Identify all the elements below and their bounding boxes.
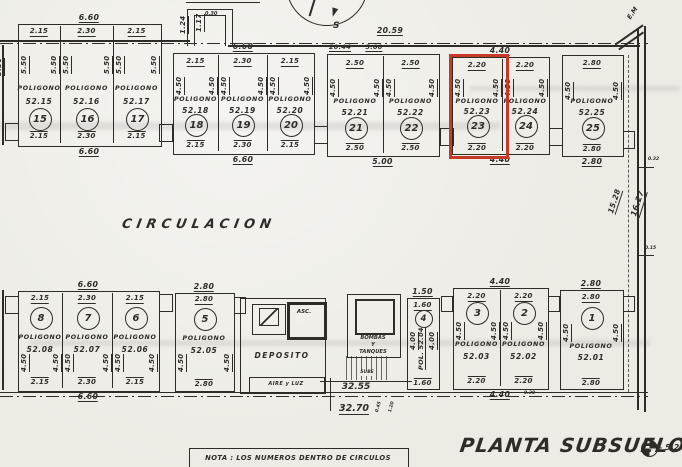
width-dimension: 2.15 — [186, 140, 204, 149]
space-divider — [500, 290, 501, 386]
block-total-dimension: 2.80 — [581, 280, 601, 289]
width-dimension: 2.30 — [78, 295, 96, 304]
pillar — [549, 128, 563, 146]
space-number-badge: 5 — [194, 308, 217, 331]
dimension-label: 1.24 — [180, 16, 189, 34]
space-number: 22 — [405, 123, 419, 134]
pillar — [623, 131, 635, 149]
pumps-label-line: Y — [371, 343, 375, 348]
polygon-code: 52.17 — [123, 98, 150, 106]
depth-dimension: 4.50 — [65, 354, 74, 372]
space-number-badge: 22 — [400, 117, 423, 140]
width-dimension: 2.15 — [127, 28, 145, 37]
polygon-code: 52.18 — [182, 107, 209, 115]
polygon-word: POLIGONO — [502, 342, 545, 348]
width-dimension: 2.20 — [514, 293, 532, 302]
depth-dimension: 4.50 — [21, 354, 30, 372]
dimension-label: 0.30 — [205, 12, 217, 17]
space-number-badge: 15 — [29, 108, 52, 131]
width-dimension: 2.80 — [582, 294, 600, 303]
width-dimension: 2.80 — [195, 296, 213, 305]
depth-dimension: 4.50 — [149, 354, 158, 372]
block-E — [562, 55, 624, 157]
space-number-badge: 16 — [76, 108, 99, 131]
polygon-word: POLIGONO — [569, 344, 612, 350]
pillar — [5, 123, 19, 141]
depth-dimension: 4.00 — [429, 332, 438, 350]
pillar — [159, 294, 173, 312]
depth-dimension: 4.50 — [538, 322, 547, 340]
space-divider — [383, 56, 384, 153]
space-divider — [62, 293, 63, 388]
block-total-dimension: 6.60 — [233, 43, 253, 52]
width-dimension: 2.15 — [126, 377, 144, 386]
floor-plan-drawing: VENTILACION CENTRAL 0.30 1.24 1.17 S 20.… — [0, 0, 682, 467]
space-number-badge: 24 — [515, 115, 538, 138]
setback-dashed-line — [628, 55, 629, 392]
space-number: 7 — [85, 313, 92, 324]
space-number-badge: 17 — [126, 108, 149, 131]
width-dimension: 1.60 — [413, 378, 431, 387]
width-dimension: 2.20 — [467, 293, 485, 302]
dimension-label: 0.15 — [645, 247, 656, 252]
level-label: - 5.2 — [659, 444, 679, 452]
polygon-word: POLIGONO — [18, 335, 61, 341]
depth-dimension: 4.50 — [178, 354, 187, 372]
polygon-code: 52.06 — [122, 346, 149, 354]
width-dimension: 2.50 — [346, 60, 364, 69]
polygon-code: 52.03 — [463, 353, 490, 361]
pumps-label-line: BOMBAS — [360, 336, 385, 341]
space-number-badge: 21 — [345, 117, 368, 140]
vent-shaft-label: VENTILACION CENTRAL — [186, 0, 260, 3]
polygon-code: 52.24 — [512, 108, 539, 116]
space-number-badge: 20 — [280, 114, 303, 137]
dimension-label: 32.70 — [339, 404, 369, 415]
width-dimension: 2.20 — [514, 376, 532, 385]
space-number: 6 — [133, 313, 140, 324]
width-dimension: 2.80 — [583, 144, 601, 153]
space-number: 21 — [349, 123, 363, 134]
depth-dimension: 4.50 — [115, 354, 124, 372]
width-dimension: 2.20 — [516, 143, 534, 152]
width-dimension: 2.15 — [281, 58, 299, 67]
space-number: 17 — [131, 114, 145, 125]
polygon-code: 52.05 — [191, 347, 218, 355]
width-dimension: 2.15 — [281, 140, 299, 149]
width-dimension: 2.15 — [127, 131, 145, 140]
space-number: 19 — [237, 120, 251, 131]
depth-dimension: 4.50 — [456, 322, 465, 340]
width-dimension: 2.50 — [346, 143, 364, 152]
polygon-word: POLIGONO — [65, 335, 108, 341]
space-number: 1 — [589, 313, 596, 324]
depth-dimension: 4.50 — [539, 79, 548, 97]
polygon-code: 52.25 — [579, 109, 606, 117]
width-dimension: 2.15 — [30, 28, 48, 37]
polygon-word: POLIGONO — [113, 335, 156, 341]
depth-dimension: 4.50 — [176, 77, 185, 95]
space-number: 5 — [202, 314, 209, 325]
polygon-word: POLIGONO — [455, 342, 498, 348]
dimension-label: 0.45 — [376, 401, 383, 413]
block-total-dimension: 1.50 — [412, 288, 432, 297]
width-dimension: 2.30 — [77, 131, 95, 140]
dimension-label: 1.20 — [389, 401, 396, 413]
dimension-label: 20.44 — [329, 44, 351, 52]
width-dimension: 2.20 — [516, 62, 534, 71]
corner-mark-label: E.M — [626, 6, 639, 21]
space-number-badge: 25 — [582, 117, 605, 140]
depth-dimension: 4.50 — [374, 79, 383, 97]
level-symbol — [641, 440, 658, 457]
depth-dimension: 4.50 — [613, 324, 622, 342]
wall-line — [637, 28, 639, 410]
pumps-tank — [355, 299, 395, 335]
space-divider — [60, 26, 61, 143]
dimension-tick — [638, 255, 654, 256]
width-dimension: 2.50 — [401, 60, 419, 69]
pillar — [5, 296, 19, 314]
width-dimension: 2.15 — [30, 131, 48, 140]
polygon-word: POLIGONO — [503, 99, 546, 105]
block-total-extra: 0.30 — [524, 392, 535, 397]
space-number: 16 — [81, 114, 95, 125]
block-total-dimension: 4.40 — [490, 278, 510, 287]
highlight-box-space-23[interactable] — [449, 54, 509, 159]
space-number: 25 — [586, 123, 600, 134]
depth-dimension: 4.50 — [224, 354, 233, 372]
width-dimension: 2.30 — [233, 140, 251, 149]
depth-dimension: 4.50 — [221, 77, 230, 95]
depth-dimension: 5.50 — [21, 56, 30, 74]
depth-dimension: 4.50 — [613, 82, 622, 100]
space-number-badge: 1 — [581, 307, 604, 330]
space-number-badge: 19 — [232, 114, 255, 137]
space-number-badge: 7 — [77, 307, 100, 330]
corner-diagonal — [618, 32, 643, 50]
dimension-label: 1.17 — [196, 14, 205, 32]
pillar — [623, 296, 635, 312]
polygon-word: POLIGONO — [268, 97, 311, 103]
dimension-line — [330, 378, 331, 411]
depth-dimension: 5.50 — [151, 56, 160, 74]
compass-south-label: S — [333, 22, 339, 31]
deposit-label: DEPOSITO — [255, 352, 310, 360]
polygon-word: POLIGONO — [17, 86, 60, 92]
block-total-dimension: 2.80 — [582, 158, 602, 167]
depth-dimension: 5.50 — [116, 56, 125, 74]
depth-dimension: 4.50 — [258, 77, 267, 95]
dimension-tick — [638, 167, 654, 168]
block-total-dimension: 6.60 — [79, 148, 99, 157]
polygon-word: POLIGONO — [389, 99, 432, 105]
space-divider — [218, 55, 219, 151]
space-number: 15 — [33, 114, 47, 125]
polygon-code: 52.08 — [27, 346, 54, 354]
space-number: 3 — [474, 308, 481, 319]
block-total-dimension: 4.40 — [490, 391, 510, 400]
width-dimension: 2.80 — [583, 60, 601, 69]
stairs-hatch — [346, 356, 390, 380]
pillar — [548, 296, 560, 312]
wall-line — [644, 26, 646, 412]
wall-line — [2, 290, 4, 390]
dimension-label: 15.28 — [607, 188, 623, 215]
space-number-badge: 4 — [415, 310, 433, 328]
width-dimension: 2.15 — [31, 295, 49, 304]
block-total-dimension: 6.60 — [78, 281, 98, 290]
width-dimension: 2.15 — [126, 295, 144, 304]
space-number: 8 — [38, 313, 45, 324]
compass-circle — [286, 0, 368, 26]
polygon-code: 52.20 — [277, 107, 304, 115]
space-number: 24 — [519, 121, 533, 132]
width-dimension: 2.30 — [233, 58, 251, 67]
depth-dimension: 5.50 — [104, 56, 113, 74]
depth-dimension: 4.50 — [491, 322, 500, 340]
stair-symbol-inner — [259, 308, 279, 326]
pillar — [441, 296, 453, 312]
dimension-label: 20.59 — [377, 27, 403, 36]
width-dimension: 2.30 — [78, 377, 96, 386]
depth-dimension: 4.50 — [53, 354, 62, 372]
dimension-label: 5.00 — [365, 44, 382, 52]
stairs-up-label: SUBE — [358, 371, 375, 376]
polygon-code: 52.21 — [342, 109, 369, 117]
depth-dimension: 4.50 — [386, 79, 395, 97]
block-total-dimension: 2.80 — [194, 283, 214, 292]
elevator-label: ASC. — [297, 310, 311, 316]
width-dimension: 2.80 — [195, 379, 213, 388]
width-dimension: 2.80 — [582, 378, 600, 387]
polygon-word: POLIGONO — [65, 86, 108, 92]
space-number-badge: 3 — [466, 302, 489, 325]
space-number: 18 — [190, 120, 204, 131]
width-dimension: 2.15 — [186, 58, 204, 67]
depth-dimension: 4.50 — [503, 322, 512, 340]
dimension-label: 0.32 — [648, 158, 659, 163]
block-total-dimension: 6.60 — [233, 156, 253, 165]
polygon-word: POLIGONO — [115, 86, 158, 92]
wall-line — [228, 45, 640, 47]
polygon-code: 52.02 — [510, 353, 537, 361]
air-light-label: AIRE y LUZ — [268, 382, 303, 387]
depth-dimension: 4.50 — [209, 77, 218, 95]
polygon-code: 52.15 — [26, 98, 53, 106]
polygon-word: POLIGONO — [570, 99, 613, 105]
space-number-badge: 2 — [513, 302, 536, 325]
polygon-word: POLIGONO — [333, 99, 376, 105]
block-total-dimension: 6.60 — [79, 14, 99, 23]
polygon-word: POLIGONO — [182, 336, 225, 342]
depth-dimension: 4.50 — [330, 79, 339, 97]
depth-dimension: 5.50 — [51, 56, 60, 74]
space-number: 4 — [421, 314, 427, 324]
depth-dimension: 4.50 — [429, 79, 438, 97]
polygon-code-vertical: POL. 52.04 — [418, 327, 426, 370]
width-dimension: 2.20 — [467, 376, 485, 385]
polygon-code: 52.16 — [73, 98, 100, 106]
depth-dimension: 5.50 — [63, 56, 72, 74]
depth-dimension: 4.50 — [270, 77, 279, 95]
space-number-badge: 6 — [125, 307, 148, 330]
space-number-badge: 8 — [30, 307, 53, 330]
depth-dimension: 4.50 — [563, 324, 572, 342]
block-total-dimension: 6.60 — [78, 393, 98, 402]
polygon-code: 52.19 — [229, 107, 256, 115]
polygon-word: POLIGONO — [221, 97, 264, 103]
width-dimension: 2.15 — [31, 377, 49, 386]
polygon-code: 52.22 — [397, 109, 424, 117]
space-number: 20 — [284, 120, 298, 131]
note-text: NOTA : LOS NUMEROS DENTRO DE CIRCULOS — [205, 455, 391, 462]
polygon-code: 52.07 — [74, 346, 101, 354]
polygon-word: POLIGONO — [174, 97, 217, 103]
space-number: 2 — [521, 308, 528, 319]
circulation-label: CIRCULACION — [121, 218, 277, 231]
polygon-code: 52.01 — [578, 354, 605, 362]
dimension-label: 5.50 — [0, 58, 5, 76]
depth-dimension: 4.50 — [103, 354, 112, 372]
space-number-badge: 18 — [185, 114, 208, 137]
pillar — [314, 126, 328, 144]
width-dimension: 2.50 — [401, 143, 419, 152]
elevator-shaft — [287, 302, 327, 340]
depth-dimension: 4.50 — [304, 77, 313, 95]
block-total-dimension: 5.00 — [372, 158, 392, 167]
pumps-label-line: TANQUES — [359, 350, 386, 355]
width-dimension: 2.30 — [77, 28, 95, 37]
